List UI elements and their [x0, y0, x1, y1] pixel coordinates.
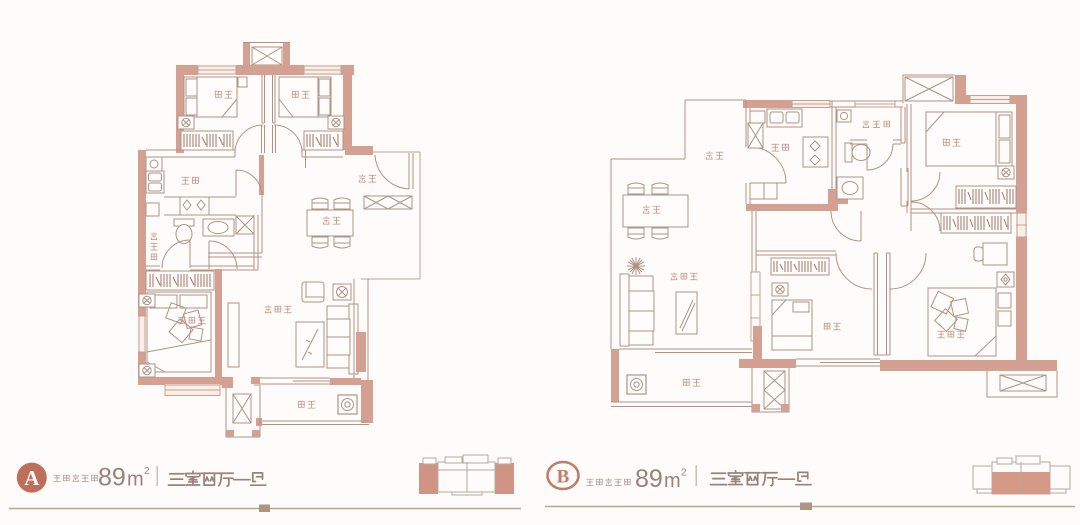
svg-text:89: 89 — [635, 465, 663, 493]
svg-text:2: 2 — [144, 466, 150, 477]
svg-text:m: m — [664, 470, 681, 492]
svg-text:m: m — [127, 469, 144, 491]
svg-text:B: B — [557, 467, 570, 488]
svg-text:2: 2 — [681, 468, 687, 479]
svg-text:89: 89 — [98, 464, 126, 492]
svg-text:A: A — [24, 466, 40, 490]
